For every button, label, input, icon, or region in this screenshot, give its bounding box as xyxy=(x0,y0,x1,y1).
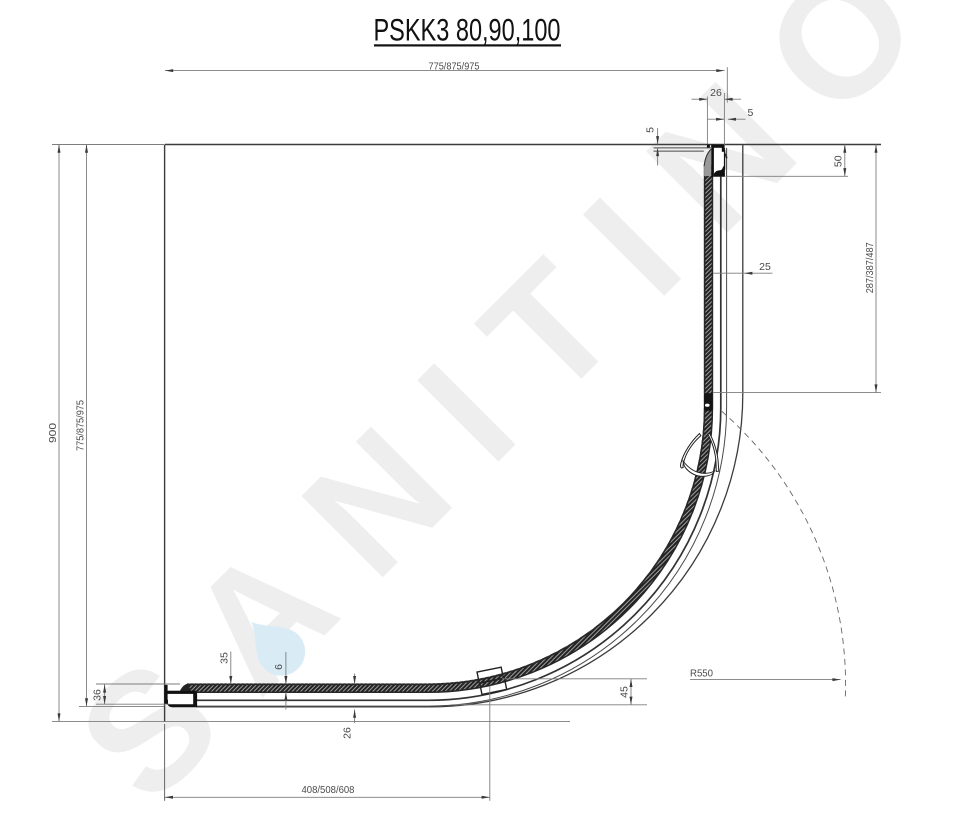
svg-text:PSKK3 80,90,100: PSKK3 80,90,100 xyxy=(374,12,561,48)
svg-text:5: 5 xyxy=(645,127,657,133)
svg-text:775/875/975: 775/875/975 xyxy=(429,60,480,72)
svg-text:35: 35 xyxy=(219,652,231,664)
svg-text:5: 5 xyxy=(748,107,754,119)
svg-text:287/387/487: 287/387/487 xyxy=(864,242,876,293)
svg-text:45: 45 xyxy=(619,686,631,698)
svg-text:26: 26 xyxy=(342,727,354,739)
svg-text:26: 26 xyxy=(710,87,722,99)
svg-text:36: 36 xyxy=(92,689,104,701)
svg-text:6: 6 xyxy=(273,664,285,670)
svg-text:25: 25 xyxy=(759,261,771,273)
svg-text:775/875/975: 775/875/975 xyxy=(75,400,87,451)
svg-text:R550: R550 xyxy=(690,668,713,680)
svg-text:50: 50 xyxy=(833,155,845,167)
svg-text:900: 900 xyxy=(47,423,59,443)
svg-text:408/508/608: 408/508/608 xyxy=(302,784,355,796)
